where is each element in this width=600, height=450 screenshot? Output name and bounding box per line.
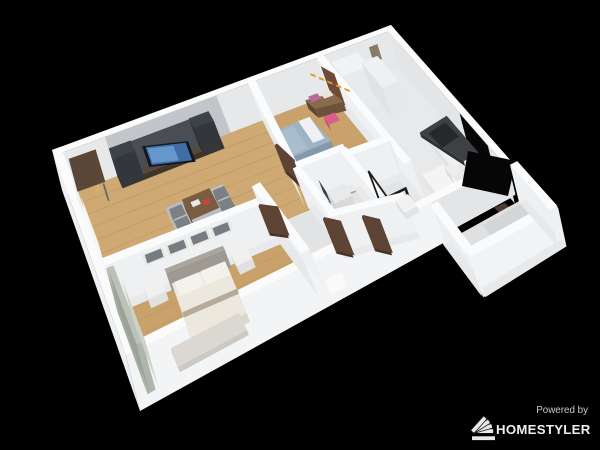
svg-text:HOMESTYLER: HOMESTYLER: [496, 422, 591, 437]
svg-text:Powered by: Powered by: [536, 405, 588, 416]
